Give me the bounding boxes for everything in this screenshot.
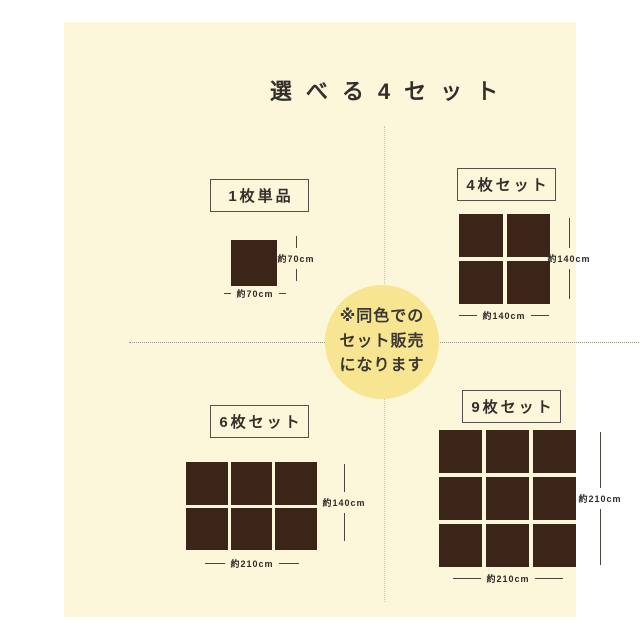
tick-line bbox=[224, 293, 231, 294]
dimension-label: 約70cm bbox=[236, 287, 273, 300]
tile-grid-6 bbox=[186, 462, 317, 550]
tick-line bbox=[600, 432, 601, 488]
width-dimension-6: 約210cm bbox=[186, 557, 318, 570]
height-dimension-6: 約140cm bbox=[322, 464, 366, 541]
set-label-9: 9枚セット bbox=[462, 390, 561, 423]
tile bbox=[459, 214, 503, 257]
tick-line bbox=[205, 563, 225, 564]
dimension-label: 約70cm bbox=[277, 252, 314, 265]
tile bbox=[486, 524, 529, 567]
tile bbox=[459, 261, 503, 304]
width-dimension-single: 約70cm bbox=[224, 287, 286, 300]
tile bbox=[439, 430, 482, 473]
tick-line bbox=[569, 269, 570, 299]
tile bbox=[486, 430, 529, 473]
tick-line bbox=[535, 578, 563, 579]
tile-grid-single bbox=[231, 240, 277, 286]
tile bbox=[533, 524, 576, 567]
height-dimension-9: 約210cm bbox=[578, 432, 622, 565]
dimension-label: 約140cm bbox=[547, 252, 590, 265]
tick-line bbox=[459, 315, 477, 316]
tile bbox=[231, 508, 273, 551]
tick-line bbox=[453, 578, 481, 579]
tile bbox=[186, 508, 228, 551]
tile bbox=[186, 462, 228, 505]
height-dimension-4: 約140cm bbox=[547, 218, 591, 299]
dimension-label: 約140cm bbox=[482, 309, 525, 322]
note-line: セット販売 bbox=[339, 330, 424, 355]
dimension-label: 約140cm bbox=[322, 496, 365, 509]
dimension-label: 約210cm bbox=[230, 557, 273, 570]
tick-line bbox=[344, 464, 345, 492]
cream-panel: 選べる4セット 1枚単品 約70cm 約70cm 4枚セット 約140cm 約1… bbox=[64, 22, 576, 617]
set-label-6: 6枚セット bbox=[210, 405, 309, 438]
note-line: ※同色での bbox=[340, 305, 425, 330]
tick-line bbox=[344, 513, 345, 541]
tick-line bbox=[531, 315, 549, 316]
height-dimension-single: 約70cm bbox=[274, 236, 318, 281]
tile bbox=[507, 261, 551, 304]
tile bbox=[231, 462, 273, 505]
tick-line bbox=[279, 563, 299, 564]
tick-line bbox=[296, 269, 297, 281]
tile bbox=[486, 477, 529, 520]
width-dimension-9: 約210cm bbox=[439, 572, 577, 585]
width-dimension-4: 約140cm bbox=[458, 309, 550, 322]
canvas: 選べる4セット 1枚単品 約70cm 約70cm 4枚セット 約140cm 約1… bbox=[0, 0, 640, 640]
tick-line bbox=[600, 509, 601, 565]
set-label-4: 4枚セット bbox=[457, 168, 556, 201]
note-line: になります bbox=[339, 354, 424, 379]
tile bbox=[275, 508, 317, 551]
page-title: 選べる4セット bbox=[128, 74, 640, 106]
tile bbox=[533, 430, 576, 473]
tile bbox=[533, 477, 576, 520]
dimension-label: 約210cm bbox=[578, 492, 621, 505]
center-note-circle: ※同色での セット販売 になります bbox=[325, 285, 439, 399]
tile bbox=[275, 462, 317, 505]
tile bbox=[439, 524, 482, 567]
tick-line bbox=[569, 218, 570, 248]
tick-line bbox=[279, 293, 286, 294]
tile-grid-9 bbox=[439, 430, 576, 567]
tick-line bbox=[296, 236, 297, 248]
tile-grid-4 bbox=[459, 214, 550, 304]
dimension-label: 約210cm bbox=[486, 572, 529, 585]
set-label-single: 1枚単品 bbox=[210, 179, 309, 212]
tile bbox=[507, 214, 551, 257]
tile bbox=[231, 240, 277, 286]
tile bbox=[439, 477, 482, 520]
